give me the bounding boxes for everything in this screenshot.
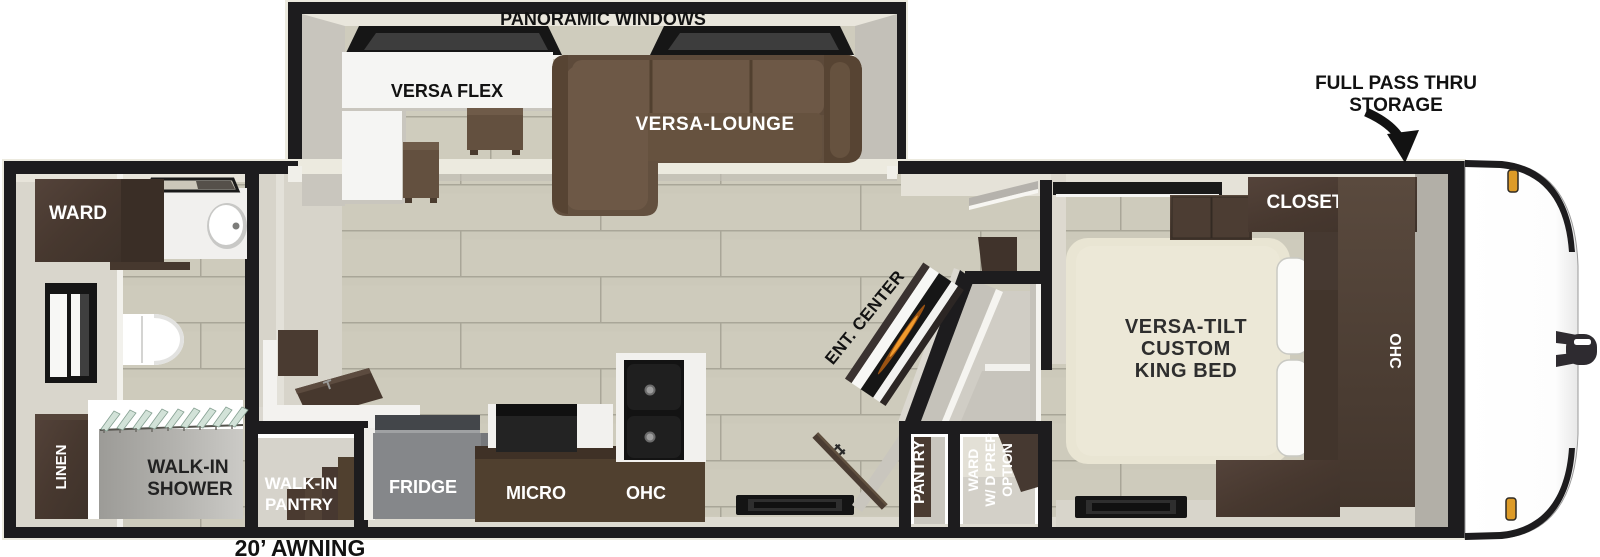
svg-text:WARD: WARD (49, 203, 107, 224)
svg-text:PANORAMIC WINDOWS: PANORAMIC WINDOWS (500, 9, 706, 29)
svg-text:CLOSET: CLOSET (1266, 192, 1343, 213)
svg-text:KING BED: KING BED (1135, 360, 1238, 382)
svg-text:VERSA FLEX: VERSA FLEX (391, 81, 503, 101)
svg-text:20’ AWNING: 20’ AWNING (235, 535, 366, 557)
svg-text:LINEN: LINEN (53, 445, 70, 490)
svg-text:CUSTOM: CUSTOM (1141, 338, 1231, 360)
svg-text:MICRO: MICRO (506, 483, 566, 503)
svg-text:PANTRY: PANTRY (265, 495, 334, 514)
svg-text:W/ D PREP: W/ D PREP (982, 433, 998, 506)
svg-text:OHC: OHC (626, 483, 666, 503)
svg-text:STORAGE: STORAGE (1349, 95, 1443, 116)
svg-text:WALK-IN: WALK-IN (147, 457, 228, 478)
svg-text:OPTION: OPTION (999, 443, 1015, 497)
svg-text:PANTRY: PANTRY (911, 440, 928, 504)
svg-text:VERSA-TILT: VERSA-TILT (1125, 316, 1247, 338)
svg-text:WARD: WARD (965, 449, 981, 492)
svg-text:VERSA-LOUNGE: VERSA-LOUNGE (635, 114, 794, 135)
svg-text:SHOWER: SHOWER (147, 479, 233, 500)
svg-text:FRIDGE: FRIDGE (389, 477, 457, 497)
svg-text:WALK-IN: WALK-IN (265, 474, 338, 493)
svg-text:OHC: OHC (1386, 333, 1403, 369)
svg-text:FULL PASS THRU: FULL PASS THRU (1315, 73, 1477, 94)
